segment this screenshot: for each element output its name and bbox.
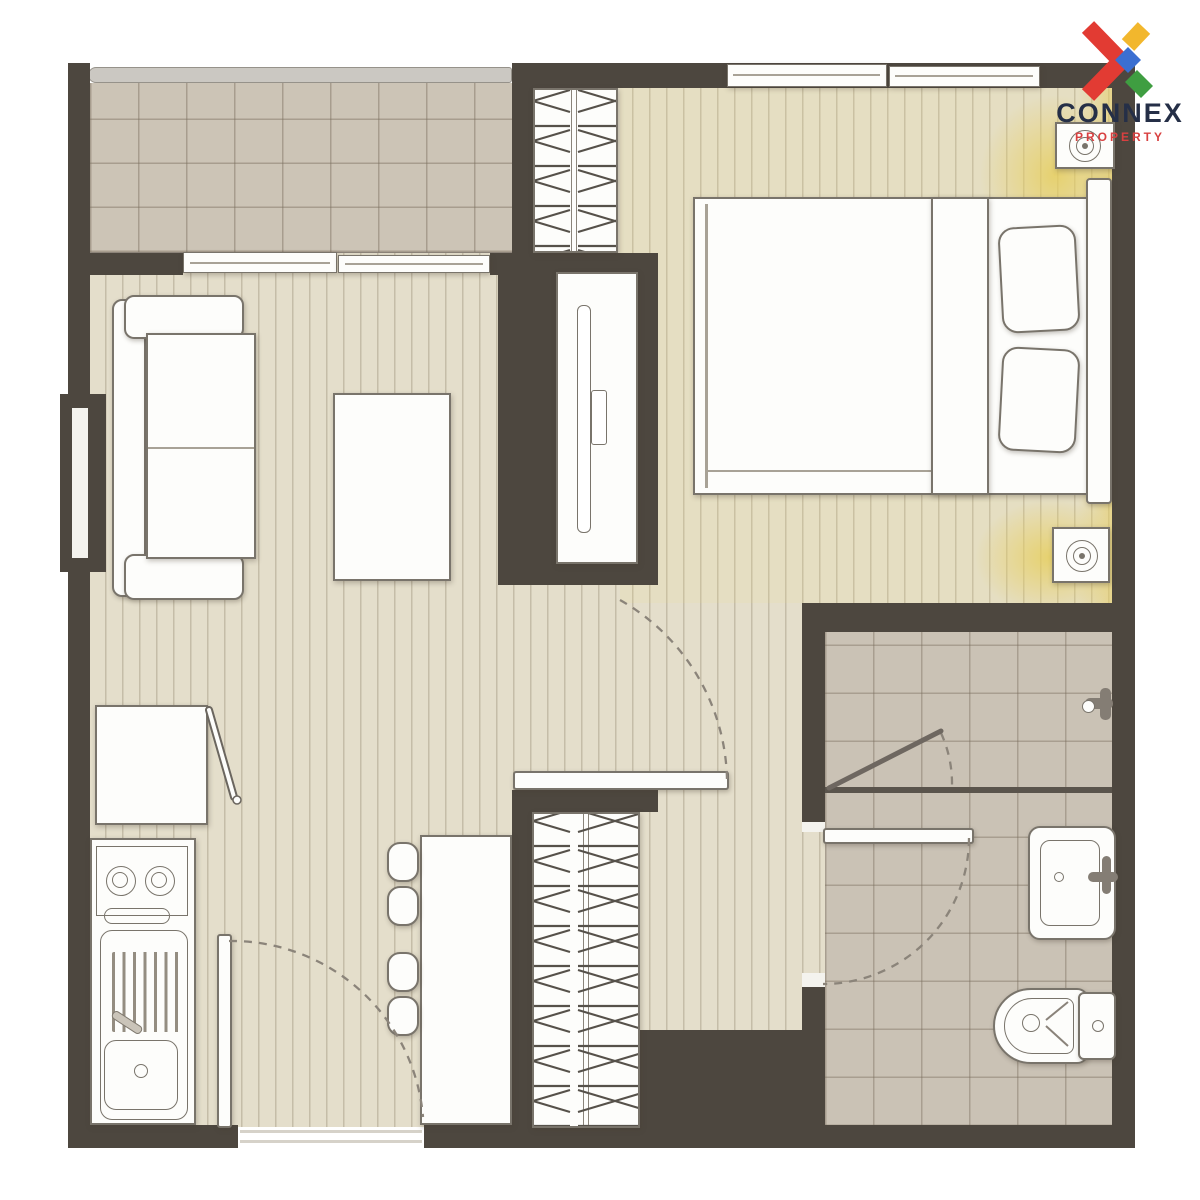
wall-bathroom-top — [802, 603, 1112, 632]
burner-inner-ring — [151, 872, 167, 888]
logo-x-yellow-arm — [1128, 28, 1144, 45]
wall-vestibule-side — [512, 790, 532, 1128]
tv-screen — [577, 305, 591, 533]
sofa-seat-cushions — [146, 333, 256, 559]
pillow-top — [997, 224, 1080, 334]
bathroom-faucet-handle — [1088, 872, 1118, 882]
closet-center-rail — [583, 814, 589, 1126]
toilet-drain-ring — [1022, 1014, 1040, 1032]
bathroom-sink-basin — [1040, 840, 1100, 926]
entrance-threshold-line-2 — [240, 1140, 422, 1143]
wall-hallway-block — [638, 1030, 802, 1128]
wall-bottom-left — [68, 1125, 238, 1148]
headboard — [1086, 178, 1112, 504]
logo-x-green-arm — [1131, 76, 1147, 92]
bedroom-door-leaf — [513, 771, 729, 790]
bathroom-sink-drain — [1054, 872, 1064, 882]
toilet-flush-button — [1092, 1020, 1104, 1032]
pillow-bottom — [997, 346, 1080, 454]
bathroom-door-jamb-bottom — [802, 973, 825, 987]
wall-left — [68, 63, 90, 1148]
balcony-sliding-door-panel-right — [338, 255, 490, 273]
stove-burner-right — [145, 866, 175, 896]
bed-frame-edge — [705, 204, 708, 488]
tv-mount-bracket — [591, 390, 607, 445]
shower-partition — [825, 787, 1112, 793]
entrance-door-leaf — [217, 934, 232, 1128]
glass-line — [895, 75, 1033, 77]
bathroom-door-jamb-top — [802, 822, 825, 832]
shower-valve-knob — [1082, 700, 1095, 713]
balcony-sliding-door-panel-left — [183, 252, 337, 273]
burner-inner-ring — [112, 872, 128, 888]
wall-right — [1112, 63, 1135, 1148]
wall-bathroom-left-lower — [802, 985, 825, 1125]
wardrobe-center-rail — [571, 90, 577, 251]
cushion-divider — [148, 447, 254, 449]
bathroom-door-leaf — [823, 828, 974, 844]
connex-logo: CONNEX PROPERTY — [1040, 14, 1200, 150]
air-conditioner-middle — [1052, 527, 1110, 583]
stove-burner-left — [106, 866, 136, 896]
dining-table — [420, 835, 512, 1125]
blanket-fold-strip — [931, 197, 989, 495]
refrigerator — [95, 705, 208, 825]
logo-tagline-text: PROPERTY — [1040, 130, 1200, 144]
logo-brand-text: CONNEX — [1040, 98, 1200, 129]
sofa-back — [112, 299, 146, 597]
wall-bottom-right — [424, 1125, 1135, 1148]
wall-left-pier-slot — [72, 408, 88, 558]
ac-fan-hub — [1079, 553, 1085, 559]
coffee-table — [333, 393, 451, 581]
stool-2-seat — [387, 996, 419, 1036]
wall-balcony-column — [512, 63, 533, 275]
stool-2-back — [387, 952, 419, 992]
wall-vestibule-top — [512, 790, 658, 812]
stool-1-back — [387, 842, 419, 882]
bedroom-window-left — [727, 64, 887, 87]
stove-drawer-handle — [104, 908, 170, 924]
balcony-tile-floor — [90, 83, 512, 253]
entrance-threshold-line-1 — [240, 1130, 422, 1133]
stool-1-seat — [387, 886, 419, 926]
floor-plan-canvas: CONNEX PROPERTY — [0, 0, 1200, 1200]
sink-drain — [134, 1064, 148, 1078]
glass-line — [733, 74, 880, 76]
glass-line — [190, 262, 330, 264]
balcony-railing — [88, 67, 512, 83]
glass-line — [345, 263, 483, 265]
wall-bathroom-left-upper — [802, 632, 825, 832]
bedroom-window-right — [889, 66, 1040, 87]
blanket-fold-line — [706, 470, 934, 472]
wall-under-balcony-left — [68, 253, 183, 275]
sofa-armrest-bottom — [124, 554, 244, 600]
